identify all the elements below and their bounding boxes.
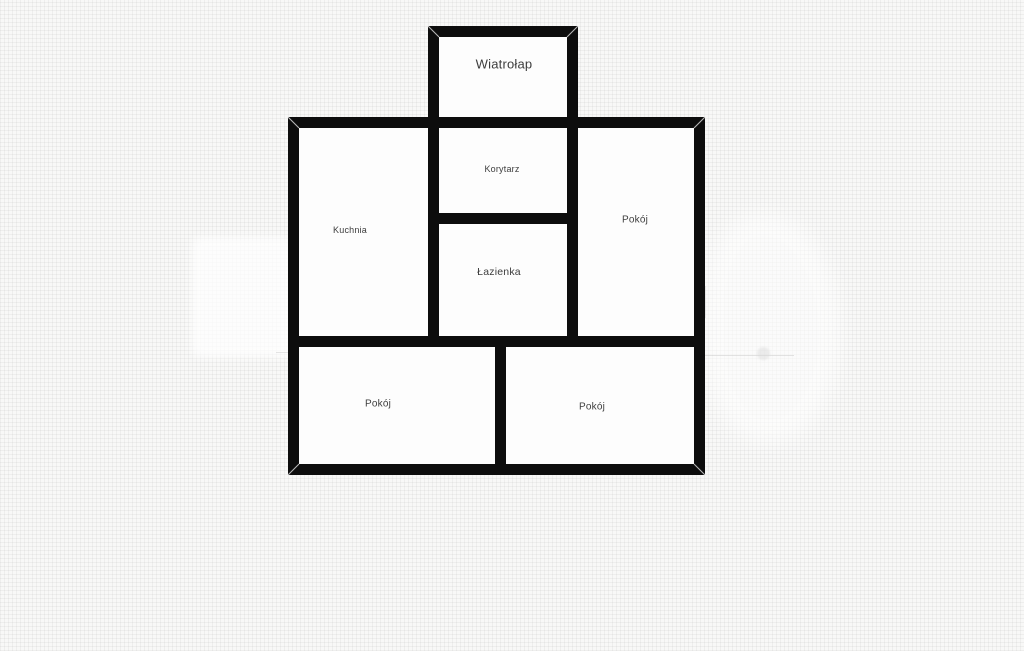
floorplan-drawing [0, 0, 1024, 651]
room-label-kuchnia: Kuchnia [333, 225, 367, 235]
room-label-lazienka: Łazienka [477, 266, 521, 278]
room-area-pokoj-right [578, 128, 694, 336]
room-label-pokoj-bottom-left: Pokój [365, 399, 391, 410]
room-area-wiatrolap [439, 37, 567, 117]
room-label-korytarz: Korytarz [484, 164, 519, 174]
room-label-pokoj-bottom-right: Pokój [579, 402, 605, 413]
room-label-pokoj-right: Pokój [622, 215, 648, 226]
room-label-wiatrolap: Wiatrołap [476, 57, 533, 72]
room-area-lazienka [439, 224, 567, 336]
room-area-pokoj-bottom-left [299, 347, 495, 464]
floorplan-canvas: Wiatrołap Korytarz Kuchnia Łazienka Pokó… [0, 0, 1024, 651]
